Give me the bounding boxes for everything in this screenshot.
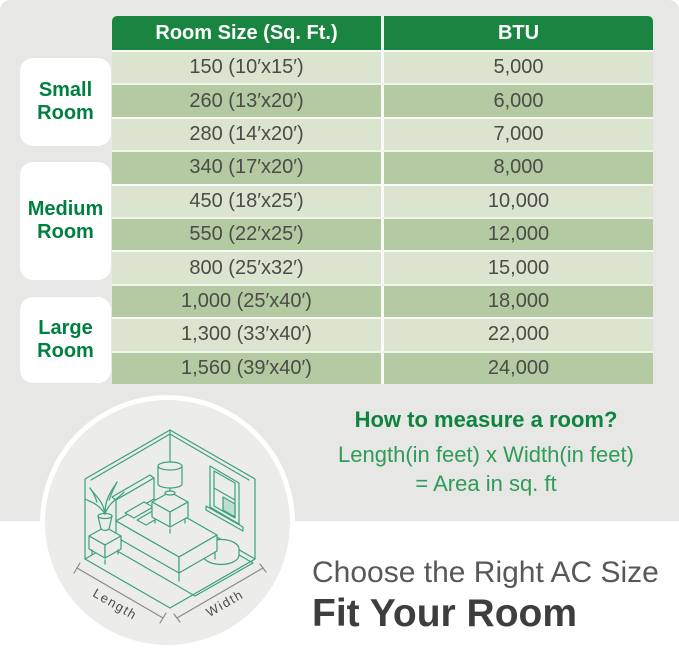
room-illustration-circle: Length Width (45, 400, 290, 645)
room-size-cell: 150 (10′x15′) (112, 52, 381, 83)
btu-cell: 10,000 (384, 186, 653, 217)
room-size-cell: 280 (14′x20′) (112, 119, 381, 150)
table-row: 450 (18′x25′)10,000 (112, 184, 653, 217)
table-row: 1,000 (25′x40′)18,000 (112, 284, 653, 317)
btu-cell: 12,000 (384, 219, 653, 250)
room-size-cell: 1,560 (39′x40′) (112, 353, 381, 384)
window-icon (206, 466, 243, 531)
btu-cell: 22,000 (384, 319, 653, 350)
table-row: 1,560 (39′x40′)24,000 (112, 351, 653, 384)
table-row: 550 (22′x25′)12,000 (112, 217, 653, 250)
measure-title: How to measure a room? (302, 407, 670, 433)
lamp-icon (158, 462, 182, 495)
room-size-cell: 1,300 (33′x40′) (112, 319, 381, 350)
room-size-cell: 340 (17′x20′) (112, 152, 381, 183)
table-row: 260 (13′x20′)6,000 (112, 83, 653, 116)
group-label-line: Medium (28, 198, 104, 221)
infographic-canvas: Room Size (Sq. Ft.) BTU 150 (10′x15′)5,0… (0, 0, 679, 648)
bed-icon (112, 475, 217, 581)
group-label-line: Room (37, 221, 94, 244)
header-room-size: Room Size (Sq. Ft.) (112, 16, 381, 50)
group-label-large-room: Large Room (20, 297, 111, 383)
measure-formula-line1: Length(in feet) x Width(in feet) (302, 440, 670, 469)
measure-note: How to measure a room? Length(in feet) x… (302, 407, 670, 498)
btu-cell: 15,000 (384, 252, 653, 283)
btu-cell: 8,000 (384, 152, 653, 183)
group-label-line: Room (37, 102, 94, 125)
group-label-line: Large (38, 317, 92, 340)
group-label-small-room: Small Room (20, 58, 111, 146)
table-body: 150 (10′x15′)5,000260 (13′x20′)6,000280 … (112, 50, 653, 384)
btu-cell: 24,000 (384, 353, 653, 384)
btu-table: Room Size (Sq. Ft.) BTU 150 (10′x15′)5,0… (112, 16, 653, 384)
room-size-cell: 450 (18′x25′) (112, 186, 381, 217)
btu-cell: 6,000 (384, 85, 653, 116)
room-size-cell: 260 (13′x20′) (112, 85, 381, 116)
group-label-medium-room: Medium Room (20, 162, 111, 280)
room-size-cell: 550 (22′x25′) (112, 219, 381, 250)
btu-cell: 5,000 (384, 52, 653, 83)
length-label: Length (90, 585, 140, 622)
room-size-cell: 1,000 (25′x40′) (112, 286, 381, 317)
table-row: 340 (17′x20′)8,000 (112, 150, 653, 183)
header-btu: BTU (384, 16, 653, 50)
width-label: Width (203, 586, 246, 619)
footer-titles: Choose the Right AC Size Fit Your Room (312, 556, 659, 636)
btu-cell: 18,000 (384, 286, 653, 317)
footer-subtitle: Choose the Right AC Size (312, 556, 659, 590)
group-label-line: Room (37, 340, 94, 363)
table-row: 1,300 (33′x40′)22,000 (112, 317, 653, 350)
footer-title: Fit Your Room (312, 592, 659, 636)
table-row: 150 (10′x15′)5,000 (112, 50, 653, 83)
table-row: 800 (25′x32′)15,000 (112, 250, 653, 283)
table-header-row: Room Size (Sq. Ft.) BTU (112, 16, 653, 50)
btu-cell: 7,000 (384, 119, 653, 150)
room-illustration: Length Width (45, 400, 290, 645)
measure-formula-line2: = Area in sq. ft (302, 469, 670, 498)
table-row: 280 (14′x20′)7,000 (112, 117, 653, 150)
room-size-cell: 800 (25′x32′) (112, 252, 381, 283)
group-label-line: Small (39, 79, 92, 102)
